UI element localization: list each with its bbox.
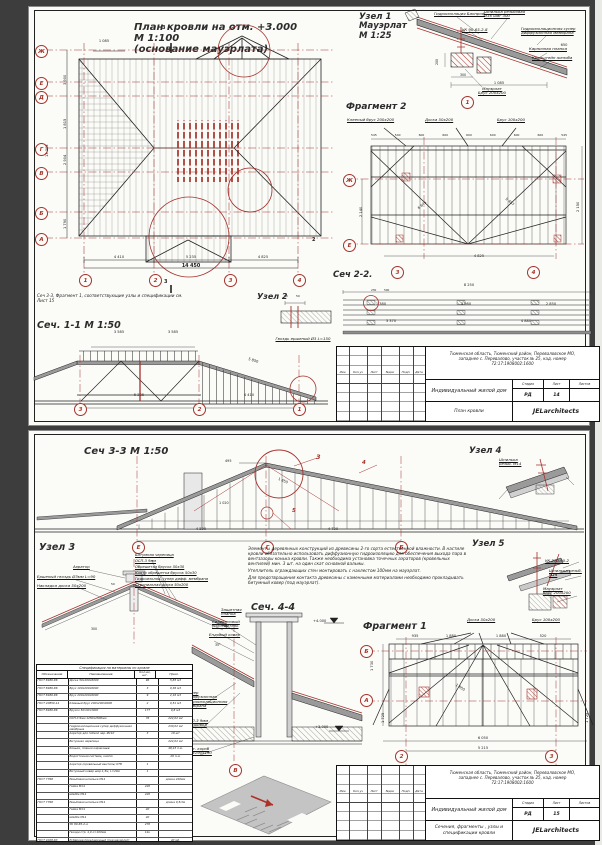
cell-designation bbox=[37, 770, 69, 777]
cell-qty: 40 bbox=[137, 815, 159, 822]
grid-bubble: 1 bbox=[79, 274, 92, 287]
table-row: Гидроизоляционная супер диффузионная мем… bbox=[37, 724, 192, 732]
table-row: Шайба М14 40 bbox=[37, 815, 192, 823]
cell-designation bbox=[37, 808, 69, 815]
callout-number: 5 bbox=[292, 508, 296, 514]
dimension: 2 140 bbox=[359, 207, 363, 217]
stage-header: Стадия bbox=[513, 799, 544, 807]
node1-label: Гидроизоляция Биопроф bbox=[434, 12, 485, 16]
dimension: 600 bbox=[490, 133, 496, 137]
cell-name: Резьбовая шпилька М14 bbox=[69, 777, 137, 784]
dimension: 495 bbox=[225, 459, 231, 463]
dimension: 6 050 bbox=[453, 736, 513, 740]
cell-note: 26 п.м. bbox=[159, 755, 192, 762]
stud-hatch bbox=[371, 146, 566, 244]
dimension: 50 bbox=[296, 294, 300, 298]
drawing-canvas: План кровли на отм. +3.000 М 1:100 (осно… bbox=[0, 0, 602, 845]
dimension: 545 bbox=[561, 133, 567, 137]
dimension: 4 825 bbox=[235, 255, 291, 259]
title-block: Изм. Кол.уч Лист №док Подп. Дата Тюменск… bbox=[336, 346, 600, 422]
cell-designation: ГОСТ 4028-63 bbox=[37, 838, 69, 842]
cell-name: Водосточная система, компл. bbox=[69, 755, 137, 762]
dimension: 1 815 bbox=[63, 119, 67, 129]
dimension: 4 520 bbox=[171, 527, 231, 531]
dimension: 4 410 bbox=[91, 255, 147, 259]
cell-designation bbox=[37, 831, 69, 838]
section44-label: Защитная планка bbox=[221, 608, 242, 617]
rev-header: №док bbox=[381, 789, 399, 793]
dimension: 1 725 bbox=[585, 713, 589, 723]
mauerlat-block bbox=[451, 53, 473, 67]
grid-bubble: 1 bbox=[293, 403, 306, 416]
roof-layers-list: Битумная черепицаОСП-3 9ммОбрешетка брус… bbox=[135, 553, 208, 589]
axis-bubble: А bbox=[360, 694, 373, 707]
cell-qty bbox=[137, 739, 159, 746]
cell-qty: 1 bbox=[137, 762, 159, 769]
dimension: 300 bbox=[91, 627, 97, 631]
firm-logo: JELarchitects bbox=[513, 821, 599, 840]
fragment1-label: Брус 100х200 bbox=[532, 618, 560, 622]
dimension: 600 bbox=[419, 133, 425, 137]
sheets-total bbox=[570, 389, 599, 401]
axis-bubble: В bbox=[35, 167, 48, 180]
rev-header: Подп. bbox=[399, 370, 413, 374]
dimension: 935 bbox=[401, 634, 429, 638]
cell-note bbox=[159, 770, 192, 777]
cell-note: длина 220мм bbox=[159, 777, 192, 784]
dimension: 4 880 bbox=[504, 319, 548, 323]
page-edge-strip bbox=[595, 0, 602, 845]
cell-designation bbox=[37, 762, 69, 769]
dimension: 500 bbox=[384, 288, 389, 292]
cell-name: Брус 200х200х6000 bbox=[69, 694, 137, 701]
note-paragraph: Элементы деревянных конструкций из древе… bbox=[248, 547, 470, 567]
dimension: 4 720 bbox=[303, 527, 363, 531]
dimension: 1 725 bbox=[381, 713, 385, 723]
cell-name: Шайба М14 bbox=[69, 815, 137, 822]
cell-qty: 3 bbox=[137, 732, 159, 739]
grid-bubble: 2 bbox=[395, 750, 408, 763]
sheets-total bbox=[570, 808, 599, 820]
roof-plan-drawing bbox=[37, 35, 342, 303]
dimension: 4 410 bbox=[219, 393, 279, 397]
cell-note: 16 шт bbox=[159, 732, 192, 739]
dimension: 50 bbox=[284, 294, 288, 298]
node1-label: Шпилька резьбовая Ø16 шаг 300 bbox=[484, 10, 525, 19]
axis-bubble: Б bbox=[360, 645, 373, 658]
dimension: 4 825 bbox=[453, 254, 505, 258]
note-paragraph: Для предотвращения контакта древесины с … bbox=[248, 576, 470, 586]
cell-note: 222,02 м2 bbox=[159, 739, 192, 746]
dimension: 2 150 bbox=[576, 202, 580, 212]
dimension: 300 bbox=[453, 73, 473, 77]
plan-note: Сеч 3-3, Фрагмент 1, соответствующие узл… bbox=[37, 293, 183, 303]
dimension: 1 880 bbox=[479, 634, 523, 638]
dimension: 50 bbox=[111, 582, 115, 586]
table-row: ГОСТ 7798 Резьбовая шпилька М14 длина 0,… bbox=[37, 800, 192, 808]
table-row: Гайка М14 40 bbox=[37, 808, 192, 816]
section44-label: Ендовый ковер bbox=[209, 633, 240, 637]
cell-name: Брус 100х200х6000 bbox=[69, 686, 137, 693]
cell-name: ОСП-3 9мм 1250х2500мм bbox=[69, 717, 137, 724]
cut-mark: 2 bbox=[312, 237, 315, 243]
cell-name: Гидроизоляционная супер диффузионная мем… bbox=[69, 724, 137, 731]
roof-layer: Стропильная доска 50х200 bbox=[135, 583, 208, 589]
dimension: 600 bbox=[514, 133, 520, 137]
cell-qty: 1 bbox=[137, 770, 159, 777]
stage-value: РД bbox=[513, 389, 544, 401]
table-row: ГОСТ 20850-14 Клееный брус 200х200х6000 … bbox=[37, 701, 192, 709]
callout-number: 4 bbox=[362, 460, 366, 466]
cell-name: Битумный ковер шир.1,5м, L=20м bbox=[69, 770, 137, 777]
cell-designation bbox=[37, 747, 69, 754]
fragment2-label: Брус 100х200 bbox=[497, 118, 525, 122]
dimension: 1 790 bbox=[63, 219, 67, 229]
stage-header: Лист bbox=[544, 799, 570, 807]
cell-qty: 96 bbox=[137, 679, 159, 686]
cell-note: длина 0,5/1м bbox=[159, 800, 192, 807]
cell-name: Гайка М14 bbox=[69, 808, 137, 815]
stage-header: Лист bbox=[544, 380, 570, 388]
dimension: 600 bbox=[537, 133, 543, 137]
wall-block bbox=[477, 57, 491, 73]
table-row: Коньки, планки карнизные 48,43 п.м. bbox=[37, 747, 192, 755]
grid-bubble: 3 bbox=[74, 403, 87, 416]
node1-label: Кронштейн желоба bbox=[532, 56, 572, 60]
dimension: 2 850 bbox=[529, 302, 573, 306]
dimension: 3 900 bbox=[63, 75, 67, 85]
callout-number: 3 bbox=[316, 453, 321, 461]
revision-headers: Изм. Кол.уч Лист №док Подп. Дата bbox=[337, 789, 425, 793]
cell-qty: 76 bbox=[137, 717, 159, 724]
dimension: 230 bbox=[371, 288, 376, 292]
dimension: 540 bbox=[395, 133, 401, 137]
project-address: Тюменская область, Тюменский район, Пере… bbox=[426, 347, 599, 380]
cell-designation bbox=[37, 717, 69, 724]
axis-bubble: Ж bbox=[35, 45, 48, 58]
plan-hatch bbox=[79, 59, 321, 262]
sheet-title: Сечения, фрагменты , узлы и спецификации… bbox=[426, 821, 513, 840]
grid-bubble: 3 bbox=[391, 266, 404, 279]
cell-note: 0,51 м3 bbox=[159, 701, 192, 708]
column-header: Кол-во, шт. bbox=[135, 671, 156, 678]
cell-qty bbox=[137, 838, 159, 842]
cell-qty: 220 bbox=[137, 785, 159, 792]
dimension: 545 bbox=[371, 133, 377, 137]
table-row: Гайка М14 220 bbox=[37, 785, 192, 793]
rev-header: Дата bbox=[413, 789, 425, 793]
table-row: УК 90-65-2-α 270 bbox=[37, 823, 192, 831]
cell-designation bbox=[37, 823, 69, 830]
cell-designation: ГОСТ 8486-86 bbox=[37, 686, 69, 693]
dimension: 600 bbox=[442, 133, 448, 137]
elevation-mark: +3.000 bbox=[315, 725, 328, 729]
cell-name: Гвозди стр. 4,0 L=100мм bbox=[69, 831, 137, 838]
cell-note bbox=[159, 762, 192, 769]
node5-drawing bbox=[499, 546, 589, 621]
cell-qty: 270 bbox=[137, 823, 159, 830]
stage-value: РД bbox=[513, 808, 544, 820]
cell-note: 40 м2, компл. 40 м bbox=[159, 838, 192, 842]
table-row: Шайба М14 220 bbox=[37, 793, 192, 801]
cell-note: 2,16 м3 bbox=[159, 694, 192, 701]
cell-qty: 3 bbox=[137, 686, 159, 693]
column-header: Прим. bbox=[156, 671, 192, 678]
rev-header: Изм. bbox=[337, 370, 349, 374]
cut-mark: 3 bbox=[162, 25, 165, 31]
grid-bubble: 4 bbox=[293, 274, 306, 287]
dimension-total: 14 450 bbox=[161, 264, 221, 269]
dim-row: 545540600600600600600600545 bbox=[371, 133, 567, 137]
axis-bubble: Б bbox=[35, 207, 48, 220]
cell-note: 0,36 м3 bbox=[159, 686, 192, 693]
node5-label: УК 270-90-2 bbox=[545, 559, 569, 563]
revision-headers: Изм. Кол.уч Лист №док Подп. Дата bbox=[337, 370, 425, 374]
cell-name: Резьбовая шпилька М14 bbox=[69, 800, 137, 807]
cell-designation: ГОСТ 7798 bbox=[37, 800, 69, 807]
section22-drawing bbox=[339, 290, 597, 338]
grid-bubble: 3 bbox=[224, 274, 237, 287]
detail-bubble: 1 bbox=[461, 96, 474, 109]
cell-designation bbox=[37, 732, 69, 739]
axis-bubble: Е bbox=[343, 239, 356, 252]
cell-designation bbox=[37, 724, 69, 731]
cell-designation bbox=[37, 815, 69, 822]
cell-designation bbox=[37, 755, 69, 762]
cell-qty bbox=[137, 747, 159, 754]
cell-name: Доска 50х200х6000 bbox=[69, 679, 137, 686]
spec-table-headers: Обозначение Наименование Кол-во, шт. При… bbox=[37, 671, 192, 679]
cell-qty: 177 bbox=[137, 709, 159, 716]
rev-header: Кол.уч bbox=[349, 789, 367, 793]
fragment2-drawing bbox=[344, 125, 592, 267]
dimension: 1 020 bbox=[219, 501, 229, 505]
column-header: Наименование bbox=[68, 671, 135, 678]
dimension: 200 bbox=[435, 59, 439, 65]
node3-label: Аэратор bbox=[73, 565, 90, 569]
cell-name: УК 90-65-2-α bbox=[69, 823, 137, 830]
cut-mark: 3 bbox=[164, 279, 167, 285]
cell-designation: ГОСТ 8486-86 bbox=[37, 709, 69, 716]
title-block: Изм. Кол.уч Лист №док Подп. Дата Тюменск… bbox=[336, 765, 600, 841]
node3-label: Ершеный гвоздь Ø3мм L=90 bbox=[37, 575, 95, 579]
cell-qty: 2 bbox=[137, 701, 159, 708]
table-row: ГОСТ 8486-86 Брус 100х200х6000 3 0,36 м3 bbox=[37, 686, 192, 694]
node3-label: Накладка доска 50х200 bbox=[37, 584, 86, 588]
node4-label: Шпилька резьб. М14 bbox=[499, 458, 521, 467]
stage-header: Листов bbox=[570, 380, 599, 388]
fragment2-title: Фрагмент 2 bbox=[346, 103, 406, 113]
axis-bubble: Ж bbox=[343, 174, 356, 187]
stage-header: Стадия bbox=[513, 380, 544, 388]
cell-note bbox=[159, 823, 192, 830]
cell-name: Клееный брус 200х200х6000 bbox=[69, 701, 137, 708]
dimension: 8 250 bbox=[441, 283, 497, 287]
table-row: ГОСТ 8486-86 Доска 50х200х6000 96 5,83 м… bbox=[37, 679, 192, 687]
dimension: 1 880 bbox=[429, 634, 473, 638]
cell-qty bbox=[137, 777, 159, 784]
axis-bubble: Е bbox=[35, 77, 48, 90]
table-row: Гвозди стр. 4,0 L=100мм 14к bbox=[37, 831, 192, 839]
dimension: 1 380 bbox=[359, 302, 403, 306]
angle-mark: 35° bbox=[215, 643, 221, 647]
dimension: 650 bbox=[549, 43, 579, 47]
cell-designation: ГОСТ 8486-86 bbox=[37, 679, 69, 686]
rev-header: №док bbox=[381, 370, 399, 374]
cell-designation: ГОСТ 20850-14 bbox=[37, 701, 69, 708]
object-name: Индивидуальный жилой дом bbox=[426, 380, 513, 401]
axis-bubble: Д bbox=[35, 91, 48, 104]
section44-label: Силиконовый уплотнитель bbox=[212, 620, 240, 629]
revision-table: Изм. Кол.уч Лист №док Подп. Дата bbox=[337, 347, 426, 421]
cell-note bbox=[159, 793, 192, 800]
sheet-1: План кровли на отм. +3.000 М 1:100 (осно… bbox=[28, 6, 590, 426]
revision-table: Изм. Кол.уч Лист №док Подп. Дата bbox=[337, 766, 426, 840]
cell-qty: 40 bbox=[137, 808, 159, 815]
object-name: Индивидуальный жилой дом bbox=[426, 799, 513, 820]
cell-qty: 14к bbox=[137, 831, 159, 838]
axis-bubble: А bbox=[35, 233, 48, 246]
rev-header: Дата bbox=[413, 370, 425, 374]
spec-table: Спецификация на материалы по кровле Обоз… bbox=[36, 664, 193, 842]
dimension: 5 215 bbox=[453, 746, 513, 750]
node4-title: Узел 4 bbox=[469, 447, 501, 456]
cell-note: 48,43 п.м. bbox=[159, 747, 192, 754]
table-row: ГОСТ 7798 Резьбовая шпилька М14 длина 22… bbox=[37, 777, 192, 785]
cell-qty bbox=[137, 724, 159, 731]
note-paragraph: Утеплитель ограждающих стен монтировать … bbox=[248, 569, 470, 574]
sheet-title: План кровли bbox=[426, 402, 513, 421]
section22-title: Сеч 2-2. bbox=[333, 271, 372, 280]
cell-qty: 220 bbox=[137, 793, 159, 800]
sheet-2: Сеч 3-3 М 1:50 Е Г Б 3 4 5 4 520 4 720 4… bbox=[28, 430, 590, 841]
dimension: 1 085 bbox=[479, 81, 519, 85]
node1-label: Карнизная планка bbox=[529, 47, 567, 51]
cell-designation bbox=[37, 785, 69, 792]
cell-note bbox=[159, 785, 192, 792]
cell-note: 5,83 м3 bbox=[159, 679, 192, 686]
cell-note: 230,02 м2 bbox=[159, 724, 192, 731]
fragment1-label: Доска 50х200 bbox=[467, 618, 495, 622]
node1-label: Мауэрлат Брус 200х200 bbox=[467, 87, 517, 96]
roof-axonometry bbox=[189, 768, 339, 840]
sheet-number: 15 bbox=[544, 808, 570, 820]
stage-table: Стадия Лист Листов РД 15 bbox=[513, 799, 599, 820]
rev-header: Кол.уч bbox=[349, 370, 367, 374]
stage-table: Стадия Лист Листов РД 14 bbox=[513, 380, 599, 401]
rev-header: Подп. bbox=[399, 789, 413, 793]
dimension: 600 bbox=[466, 133, 472, 137]
sheet-number: 14 bbox=[544, 389, 570, 401]
section11-drawing bbox=[31, 325, 331, 413]
cell-qty bbox=[137, 800, 159, 807]
dimension: 2 904 bbox=[63, 155, 67, 165]
grid-bubble: 4 bbox=[527, 266, 540, 279]
cell-name: Рубероид прокладочный (под мауэрлат) bbox=[69, 838, 137, 842]
rev-header: Изм. bbox=[337, 789, 349, 793]
roof-layer: Гидроизоляц. супер дифф. мембрана bbox=[135, 577, 208, 583]
cell-note: 0,8 м3 bbox=[159, 709, 192, 716]
elevation-mark: +4.000 bbox=[313, 619, 326, 623]
grid-bubble: 3 bbox=[545, 750, 558, 763]
dimension: 1 730 bbox=[370, 661, 374, 671]
node3-title: Узел 3 bbox=[39, 543, 75, 553]
node5-label: Шпилька резьб. М14 bbox=[549, 569, 582, 578]
project-address: Тюменская область, Тюменский район, Пере… bbox=[426, 766, 599, 799]
dimension: 3 585 bbox=[153, 330, 193, 334]
cell-qty: 9 bbox=[137, 694, 159, 701]
grid-bubble: 2 bbox=[149, 274, 162, 287]
dimension: 3 980 bbox=[444, 302, 488, 306]
cell-name: Аэратор для гибкой чер. Ø110 bbox=[69, 732, 137, 739]
cell-note: 222,02 м2 bbox=[159, 717, 192, 724]
dimension: 13 305 bbox=[45, 144, 49, 157]
dimension: 5 235 bbox=[163, 255, 219, 259]
node5-label: Мауэрлат брус 200х200 bbox=[543, 587, 571, 596]
column-header: Обозначение bbox=[37, 671, 68, 678]
cell-designation: ГОСТ 7798 bbox=[37, 777, 69, 784]
cell-note bbox=[159, 831, 192, 838]
cell-name: Гайка М14 bbox=[69, 785, 137, 792]
table-row: ГОСТ 4028-63 Рубероид прокладочный (под … bbox=[37, 838, 192, 842]
firm-logo: JELarchitects bbox=[513, 402, 599, 421]
cell-name: Шайба М14 bbox=[69, 793, 137, 800]
dimension: 520 bbox=[529, 634, 557, 638]
cell-designation bbox=[37, 739, 69, 746]
fragment2-label: Клееный брус 200х200 bbox=[347, 118, 394, 122]
cell-qty bbox=[137, 755, 159, 762]
dimension: 3 370 bbox=[369, 319, 413, 323]
node1-label: УК 90-65-2-α bbox=[462, 28, 488, 32]
cell-name: Битумная черепица bbox=[69, 739, 137, 746]
stage-header: Листов bbox=[570, 799, 599, 807]
cell-name: Аэратор (кровельный вентиль) КТВ bbox=[69, 762, 137, 769]
dimension: 5 235 bbox=[109, 393, 169, 397]
cell-designation bbox=[37, 793, 69, 800]
cell-note bbox=[159, 808, 192, 815]
spec-table-body: ГОСТ 8486-86 Доска 50х200х6000 96 5,83 м… bbox=[37, 679, 192, 842]
cell-name: Брусок 50х30х3000 bbox=[69, 709, 137, 716]
dimension: 3 585 bbox=[99, 330, 139, 334]
dimension: 1 085 bbox=[84, 39, 124, 43]
node1-label: Гидроизоляционная супер диффузионная мем… bbox=[521, 27, 576, 36]
rev-header: Лист bbox=[367, 370, 381, 374]
fragment2-label: Доска 50х200 bbox=[425, 118, 453, 122]
rev-header: Лист bbox=[367, 789, 381, 793]
grid-bubble: 2 bbox=[193, 403, 206, 416]
cell-name: Коньки, планки карнизные bbox=[69, 747, 137, 754]
general-notes: Элементы деревянных конструкций из древе… bbox=[248, 547, 470, 589]
table-row: ГОСТ 8486-86 Брус 200х200х6000 9 2,16 м3 bbox=[37, 694, 192, 702]
cell-note bbox=[159, 815, 192, 822]
cell-designation: ГОСТ 8486-86 bbox=[37, 694, 69, 701]
